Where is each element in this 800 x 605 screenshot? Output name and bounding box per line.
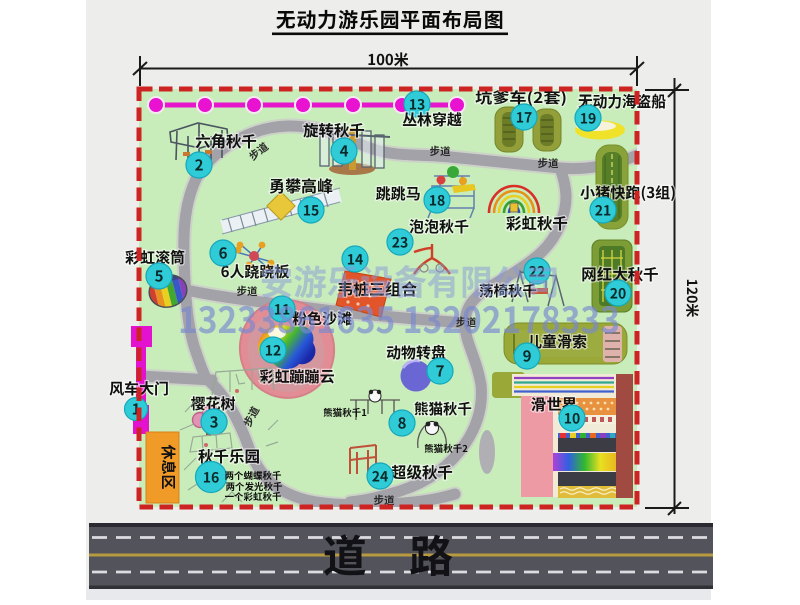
svg-text:17: 17	[516, 108, 533, 128]
svg-text:24: 24	[372, 467, 389, 487]
svg-text:超级秋千: 超级秋千	[391, 461, 454, 483]
svg-text:熊猫秋千1: 熊猫秋千1	[323, 405, 367, 419]
svg-text:7: 7	[436, 361, 445, 382]
svg-text:六角秋千: 六角秋千	[195, 130, 258, 152]
svg-text:泡泡秋千: 泡泡秋千	[409, 216, 469, 237]
svg-text:8: 8	[398, 413, 407, 434]
svg-text:熊猫秋千: 熊猫秋千	[414, 398, 472, 419]
svg-text:23: 23	[392, 233, 409, 253]
svg-text:丛林穿越: 丛林穿越	[402, 109, 462, 130]
svg-text:4: 4	[340, 141, 349, 162]
svg-text:勇攀高峰: 勇攀高峰	[269, 173, 333, 197]
svg-text:跳跳马: 跳跳马	[375, 183, 420, 204]
svg-text:2: 2	[195, 155, 204, 176]
svg-text:彩虹秋千: 彩虹秋千	[506, 212, 569, 234]
svg-text:21: 21	[595, 201, 612, 221]
svg-text:13233861635 13202178333: 13233861635 13202178333	[178, 292, 620, 344]
svg-text:18: 18	[429, 191, 446, 211]
svg-text:19: 19	[580, 109, 597, 129]
svg-text:彩虹蹦蹦云: 彩虹蹦蹦云	[259, 366, 334, 387]
svg-text:一个彩虹秋千: 一个彩虹秋千	[224, 489, 281, 503]
svg-text:熊猫秋千2: 熊猫秋千2	[424, 441, 468, 455]
svg-text:100米: 100米	[367, 49, 409, 70]
svg-text:路: 路	[409, 521, 453, 585]
svg-text:步道: 步道	[430, 144, 451, 159]
svg-text:6: 6	[219, 243, 228, 264]
svg-text:16: 16	[203, 468, 220, 488]
svg-text:9: 9	[523, 346, 532, 367]
svg-text:120米: 120米	[682, 279, 702, 318]
svg-text:5: 5	[155, 266, 164, 287]
svg-text:步道: 步道	[538, 156, 559, 171]
svg-text:休息区: 休息区	[158, 443, 179, 489]
svg-text:10: 10	[564, 409, 581, 429]
svg-text:15: 15	[303, 201, 320, 221]
svg-text:3: 3	[210, 412, 219, 433]
svg-text:道: 道	[323, 521, 367, 585]
svg-text:无动力游乐园平面布局图: 无动力游乐园平面布局图	[276, 4, 505, 33]
svg-text:旋转秋千: 旋转秋千	[303, 119, 366, 141]
